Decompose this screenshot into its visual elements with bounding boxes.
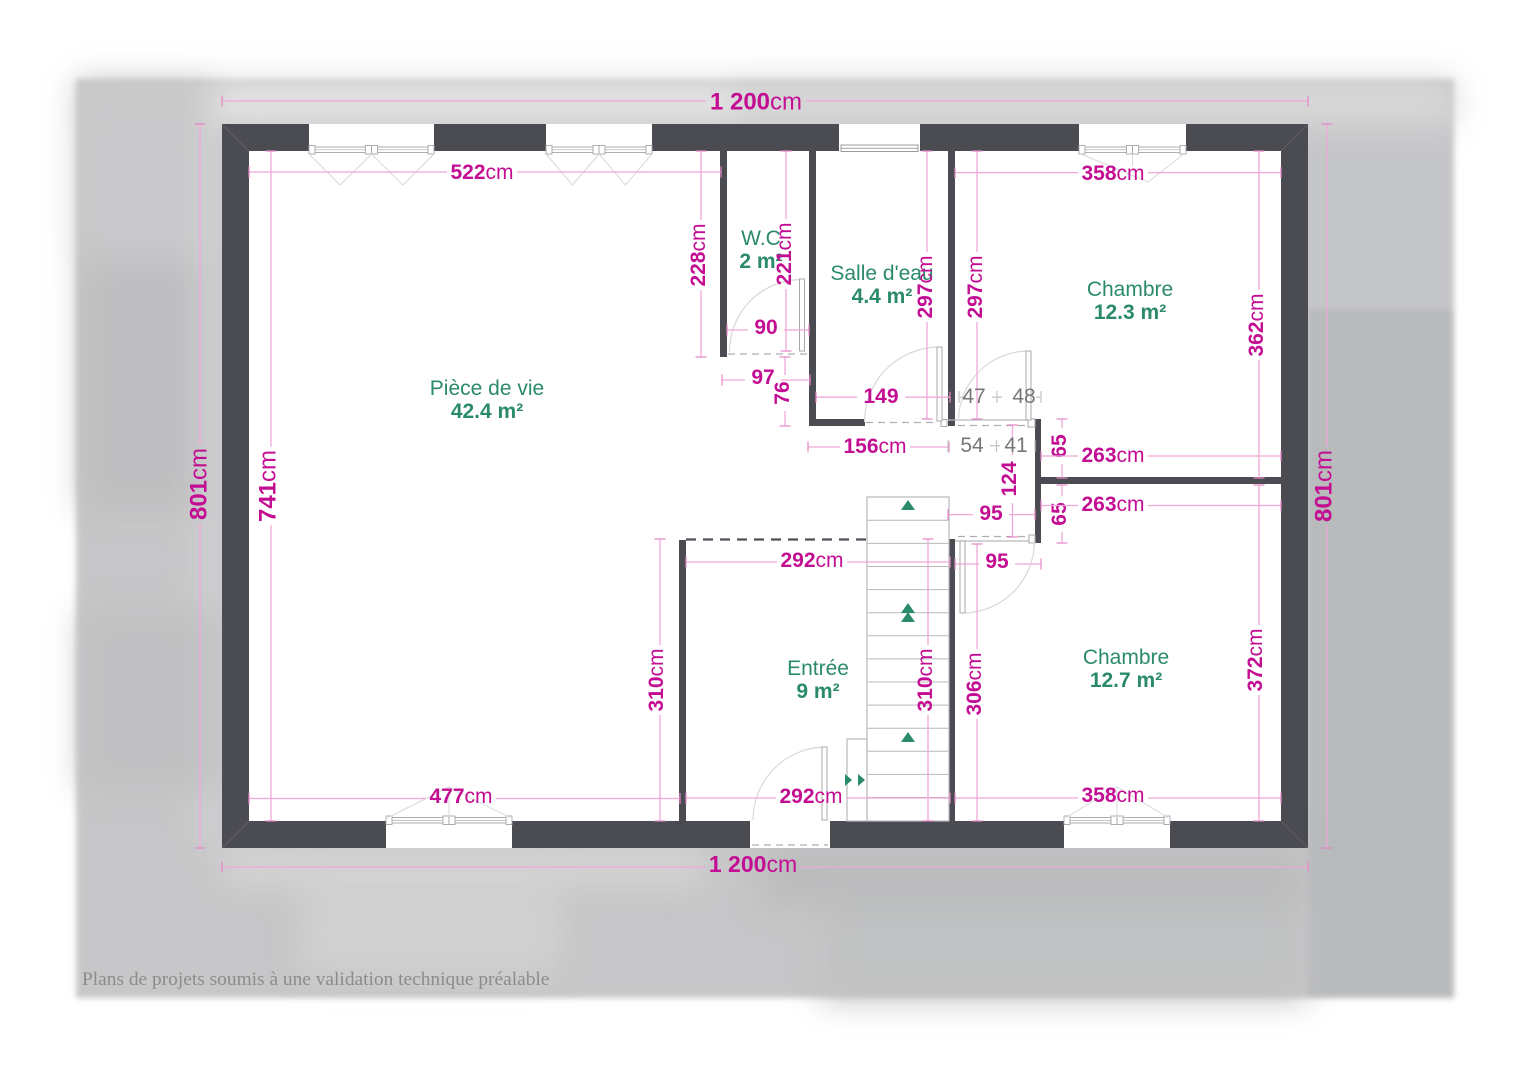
svg-text:Pièce de vie: Pièce de vie <box>430 377 544 400</box>
svg-text:54: 54 <box>960 434 984 457</box>
svg-text:310cm: 310cm <box>645 648 668 711</box>
svg-text:297cm: 297cm <box>964 255 987 318</box>
svg-text:12.3 m²: 12.3 m² <box>1094 301 1166 324</box>
svg-text:372cm: 372cm <box>1244 628 1267 691</box>
svg-text:149: 149 <box>863 385 898 408</box>
svg-text:522cm: 522cm <box>450 161 513 184</box>
svg-text:47: 47 <box>962 385 985 408</box>
svg-text:1 200cm: 1 200cm <box>709 851 797 877</box>
svg-text:297cm: 297cm <box>914 255 937 318</box>
svg-text:1 200cm: 1 200cm <box>710 88 802 115</box>
svg-text:263cm: 263cm <box>1081 444 1144 467</box>
svg-text:310cm: 310cm <box>914 648 937 711</box>
svg-text:12.7 m²: 12.7 m² <box>1090 669 1162 692</box>
svg-text:Chambre: Chambre <box>1083 646 1169 669</box>
svg-text:41: 41 <box>1004 434 1027 457</box>
svg-text:306cm: 306cm <box>963 652 986 715</box>
svg-text:741cm: 741cm <box>254 450 281 522</box>
svg-text:292cm: 292cm <box>780 549 843 572</box>
svg-text:292cm: 292cm <box>779 785 842 808</box>
svg-text:801cm: 801cm <box>1310 450 1337 522</box>
svg-text:228cm: 228cm <box>687 223 710 286</box>
svg-text:156cm: 156cm <box>843 435 906 458</box>
svg-text:362cm: 362cm <box>1245 293 1268 356</box>
svg-text:221cm: 221cm <box>773 222 796 285</box>
svg-text:358cm: 358cm <box>1081 162 1144 185</box>
svg-text:124: 124 <box>998 461 1021 496</box>
svg-text:42.4 m²: 42.4 m² <box>451 400 523 423</box>
svg-text:9 m²: 9 m² <box>796 680 839 703</box>
svg-text:Entrée: Entrée <box>787 657 849 680</box>
svg-text:477cm: 477cm <box>429 785 492 808</box>
svg-text:Chambre: Chambre <box>1087 278 1173 301</box>
svg-text:801cm: 801cm <box>185 448 212 520</box>
svg-text:95: 95 <box>985 550 1009 573</box>
svg-text:358cm: 358cm <box>1081 784 1144 807</box>
svg-text:4.4 m²: 4.4 m² <box>852 285 913 308</box>
svg-text:90: 90 <box>754 316 777 339</box>
svg-text:76: 76 <box>771 381 794 404</box>
svg-text:263cm: 263cm <box>1081 493 1144 516</box>
svg-text:95: 95 <box>979 502 1003 525</box>
svg-text:48: 48 <box>1012 385 1035 408</box>
svg-text:65: 65 <box>1048 434 1071 458</box>
